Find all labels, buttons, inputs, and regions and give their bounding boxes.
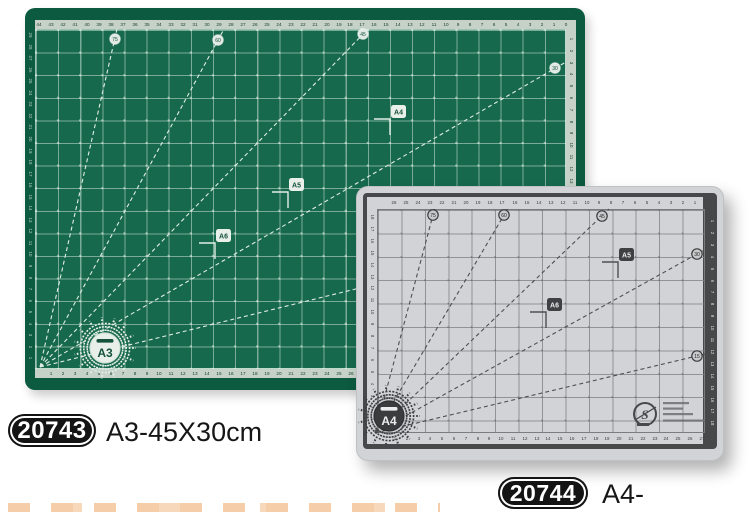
ruler-number: 2	[27, 346, 31, 348]
ruler-number: 6	[27, 299, 31, 301]
ruler-number: 25	[27, 79, 31, 84]
product-code-badge-20743: 20743	[8, 414, 96, 447]
watermark	[8, 503, 440, 512]
ruler-number: 3	[27, 334, 31, 336]
ruler-number: 5	[27, 311, 31, 313]
ruler-number: 9	[27, 265, 31, 267]
ruler-number: 10	[27, 252, 31, 257]
ruler-number: 17	[27, 171, 31, 176]
product-code-badge-20744: 20744	[498, 477, 588, 509]
ruler-number: 23	[27, 102, 31, 107]
product-size-label-a4: A4-30X22cm	[602, 479, 751, 512]
ruler-number: 29	[27, 33, 31, 38]
ruler-number: 7	[27, 288, 31, 290]
ruler-number: 26	[27, 67, 31, 72]
catalog-page: 4443424140393837363534333231302928272625…	[0, 0, 751, 512]
ruler-number: 22	[27, 113, 31, 118]
ruler-number: 24	[27, 90, 31, 95]
ruler-number: 15	[27, 194, 31, 199]
ruler-number: 8	[27, 276, 31, 278]
ruler-number: 21	[27, 125, 31, 130]
product-size-label-a3: A3-45X30cm	[106, 417, 262, 448]
ruler-number: 19	[27, 148, 31, 153]
ruler-number: 16	[27, 183, 31, 188]
ruler-number: 11	[27, 241, 31, 246]
ruler-number: 27	[27, 56, 31, 61]
grid-area-a4	[377, 209, 705, 433]
ruler-number: 12	[27, 229, 31, 234]
ruler-number: 28	[27, 44, 31, 49]
ruler-number: 4	[27, 323, 31, 325]
ruler-number: 14	[27, 206, 31, 211]
ruler-number: 18	[27, 160, 31, 165]
ruler-strip-top	[35, 20, 576, 29]
cutting-mat-a4: 2625242322212019181716151413121110987654…	[356, 186, 724, 461]
ruler-number: 1	[27, 357, 31, 359]
ruler-number: 20	[27, 136, 31, 141]
ruler-number: 13	[27, 217, 31, 222]
